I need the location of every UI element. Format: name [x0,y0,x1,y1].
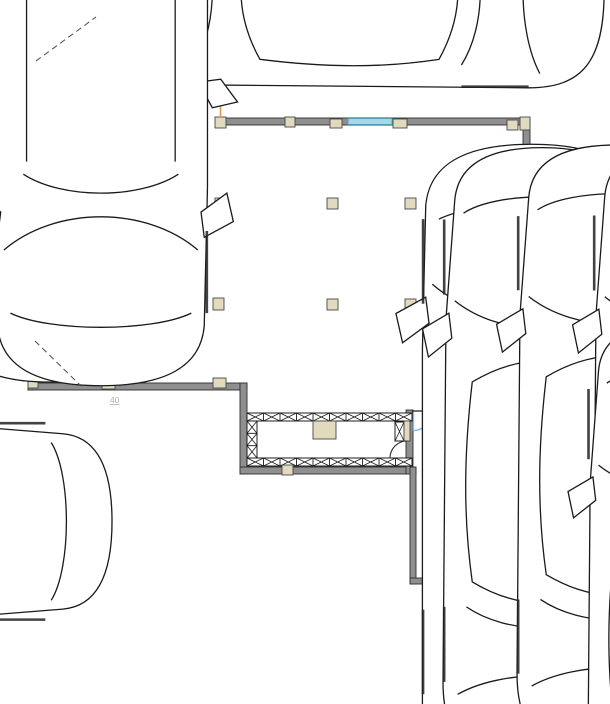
column [327,198,338,209]
dimension-label: 40 [110,395,120,405]
hatched-wall-x [395,422,404,441]
parking-garage-floor-plan: 40 [0,0,610,704]
column [282,465,293,475]
column [313,421,336,439]
hatched-wall-x [247,413,412,421]
cars-layer [0,0,610,704]
column [520,117,530,130]
wall-segment [240,467,416,474]
car-icon [0,0,233,386]
column [213,298,224,310]
column [215,117,226,128]
column [285,117,295,127]
wall-segment [240,383,247,474]
column [404,421,410,441]
hatched-wall-x [247,421,257,458]
column [393,119,407,128]
hatched-wall-x [247,458,412,466]
car-icon [0,402,112,642]
column [405,198,416,209]
door-swing-arc [390,441,407,458]
window-layer [348,119,392,125]
column [507,120,518,130]
labels-layer: 40 [110,395,120,405]
column [327,299,338,310]
column [213,378,226,388]
wall-segment [410,467,416,584]
floor-plan-canvas: 40 [0,0,610,704]
window-symbol [348,119,392,125]
column [330,119,342,128]
